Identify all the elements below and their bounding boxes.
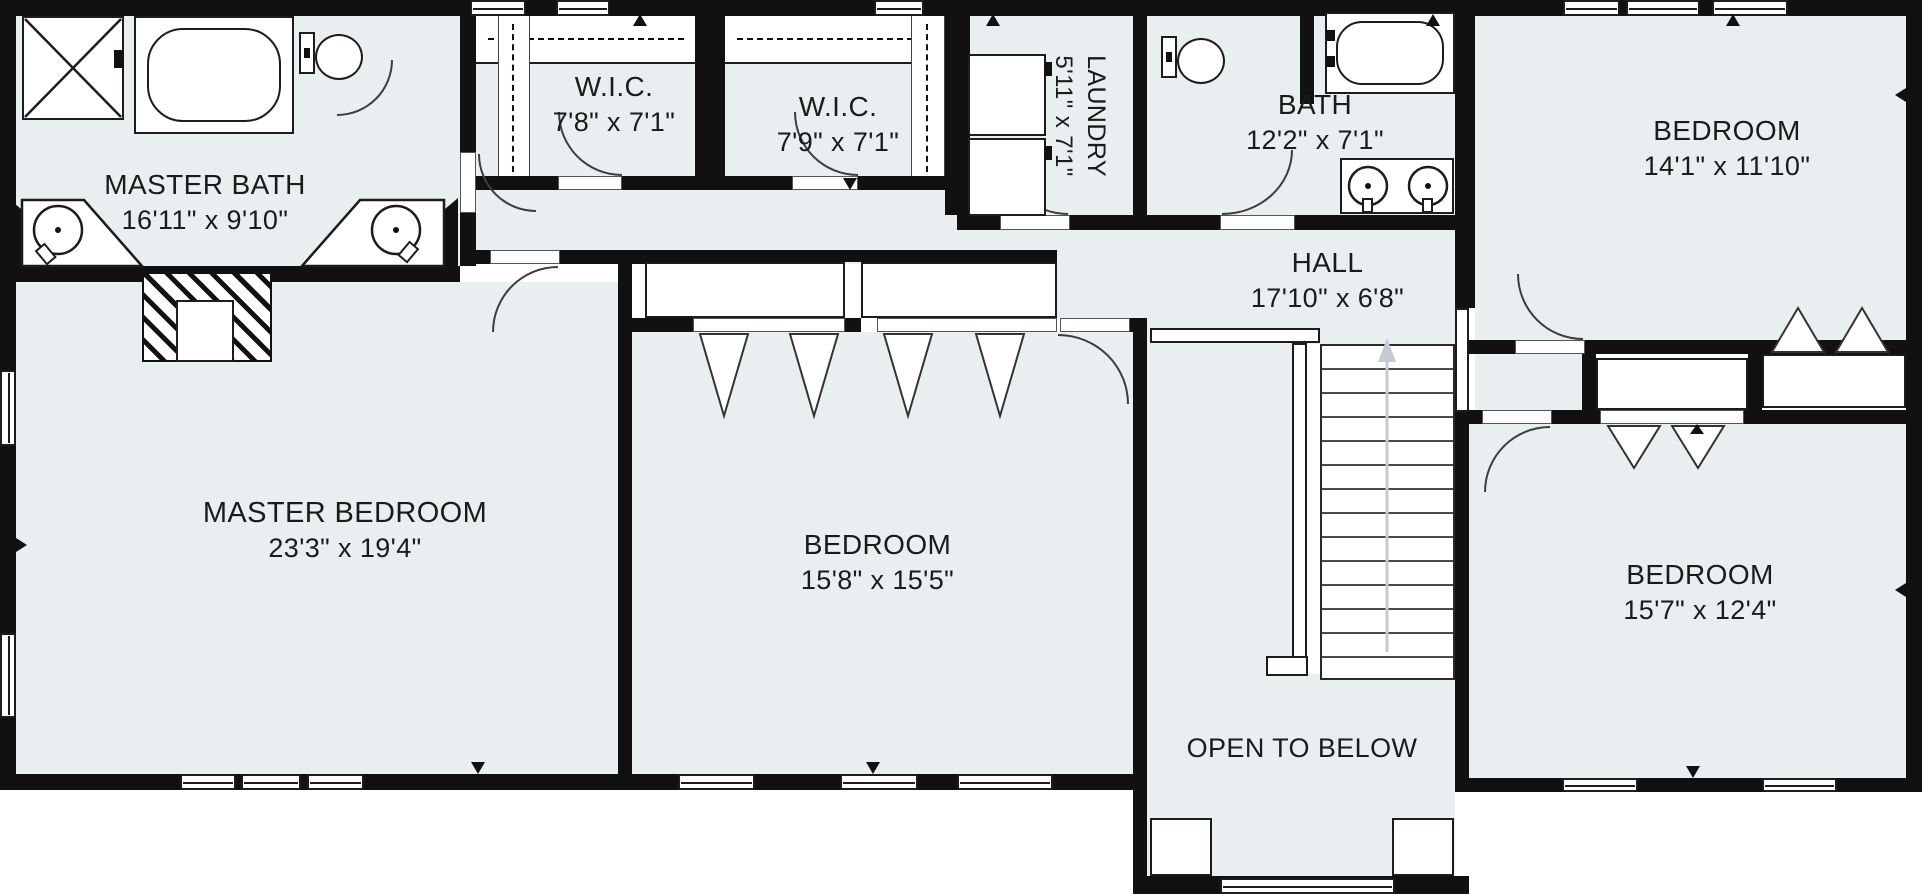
room-name: LAUNDRY bbox=[1082, 55, 1108, 177]
wall bbox=[1469, 340, 1515, 354]
window bbox=[840, 774, 918, 790]
fireplace-icon bbox=[176, 300, 234, 362]
room-name: BEDROOM bbox=[1653, 116, 1800, 145]
floor-hall-east bbox=[1057, 264, 1147, 318]
room-dims: 15'7" x 12'4" bbox=[1623, 596, 1776, 624]
wall bbox=[560, 250, 645, 264]
toilet-icon bbox=[315, 34, 363, 80]
stairs bbox=[1320, 344, 1455, 680]
toilet-icon bbox=[299, 32, 315, 74]
room-name: MASTER BEDROOM bbox=[203, 498, 487, 528]
vanity-icon bbox=[1340, 158, 1454, 214]
wall bbox=[632, 318, 693, 332]
wall bbox=[1147, 215, 1220, 230]
wall bbox=[1744, 410, 1906, 424]
door-opening bbox=[460, 152, 476, 213]
window bbox=[1626, 0, 1700, 16]
room-dims: 5'11" x 7'1" bbox=[1051, 55, 1076, 176]
window bbox=[1220, 878, 1395, 894]
closet-opening bbox=[877, 318, 1057, 332]
door-opening bbox=[1515, 340, 1585, 354]
floor-closet-landing bbox=[1475, 354, 1582, 410]
room-label-bedroom-top-right: BEDROOM 14'1" x 11'10" bbox=[1560, 110, 1894, 186]
door-opening bbox=[558, 176, 622, 190]
wall bbox=[1455, 412, 1469, 792]
room-dims: 17'10" x 6'8" bbox=[1251, 284, 1404, 312]
window bbox=[957, 774, 1053, 790]
room-label-hall: HALL 17'10" x 6'8" bbox=[1195, 242, 1460, 318]
bathtub-icon bbox=[1336, 21, 1444, 85]
shower-icon bbox=[22, 16, 124, 120]
window bbox=[180, 774, 236, 790]
window bbox=[0, 370, 16, 446]
closet bbox=[1596, 358, 1748, 410]
room-dims: 7'9" x 7'1" bbox=[777, 128, 899, 156]
wall bbox=[1552, 410, 1600, 424]
label-open-to-below: OPEN TO BELOW bbox=[1147, 730, 1457, 766]
stair-railing bbox=[1455, 308, 1469, 412]
room-label-laundry: LAUNDRY 5'11" x 7'1" bbox=[1038, 36, 1122, 196]
window bbox=[307, 774, 364, 790]
closet bbox=[645, 262, 845, 318]
wall bbox=[1582, 352, 1596, 412]
door-opening bbox=[490, 250, 560, 264]
washer-icon bbox=[968, 54, 1046, 136]
toilet-icon bbox=[1177, 38, 1225, 84]
window bbox=[874, 0, 924, 16]
wall bbox=[1469, 410, 1482, 424]
room-label-bedroom-bottom-right: BEDROOM 15'7" x 12'4" bbox=[1522, 552, 1878, 632]
window bbox=[1563, 0, 1620, 16]
room-dims: 7'8" x 7'1" bbox=[553, 108, 675, 136]
room-name: BATH bbox=[1278, 90, 1352, 119]
wall bbox=[1462, 778, 1914, 792]
door-opening bbox=[1220, 215, 1295, 230]
room-label-wic2: W.I.C. 7'9" x 7'1" bbox=[728, 88, 948, 160]
window bbox=[241, 774, 301, 790]
open-to-below-text: OPEN TO BELOW bbox=[1187, 734, 1418, 762]
wall-niche bbox=[1150, 818, 1212, 876]
wall bbox=[1906, 0, 1922, 792]
room-label-master-bath: MASTER BATH 16'11" x 9'10" bbox=[60, 164, 350, 240]
room-name: HALL bbox=[1292, 248, 1364, 277]
window bbox=[1712, 0, 1788, 16]
window bbox=[1762, 778, 1837, 792]
door-opening bbox=[1060, 318, 1130, 332]
stair-railing bbox=[1150, 328, 1320, 343]
floor-open-to-below bbox=[1147, 344, 1292, 674]
wall bbox=[460, 16, 476, 152]
wall bbox=[858, 176, 957, 190]
door-opening bbox=[1482, 410, 1552, 424]
closet bbox=[861, 262, 1057, 318]
closet-rod bbox=[737, 38, 933, 40]
wall bbox=[1748, 352, 1762, 412]
room-name: BEDROOM bbox=[1626, 560, 1773, 589]
wall-niche bbox=[1392, 818, 1454, 876]
wall bbox=[945, 16, 970, 215]
floor-plan: MASTER BATH 16'11" x 9'10" W.I.C. 7'8" x… bbox=[0, 0, 1922, 894]
wall bbox=[460, 250, 490, 264]
window bbox=[0, 633, 16, 718]
door-arc bbox=[492, 266, 558, 332]
dryer-icon bbox=[968, 138, 1046, 216]
stair-railing bbox=[1292, 343, 1307, 675]
room-dims: 14'1" x 11'10" bbox=[1644, 152, 1811, 180]
room-label-bath: BATH 12'2" x 7'1" bbox=[1190, 84, 1440, 160]
closet-opening bbox=[1600, 410, 1744, 424]
room-name: BEDROOM bbox=[804, 530, 951, 559]
wall bbox=[645, 250, 1057, 262]
window bbox=[556, 0, 610, 16]
closet-opening bbox=[693, 318, 845, 332]
room-label-bedroom-middle: BEDROOM 15'8" x 15'5" bbox=[700, 522, 1055, 602]
room-label-master-bedroom: MASTER BEDROOM 23'3" x 19'4" bbox=[120, 490, 570, 570]
bathtub-icon bbox=[147, 28, 281, 122]
room-dims: 16'11" x 9'10" bbox=[122, 206, 289, 234]
wall bbox=[845, 318, 861, 332]
door-opening bbox=[792, 176, 858, 190]
wall bbox=[1070, 215, 1147, 230]
window bbox=[470, 0, 526, 16]
room-name: MASTER BATH bbox=[104, 170, 305, 199]
stair-railing bbox=[1266, 656, 1308, 676]
door-opening bbox=[1000, 215, 1070, 230]
wall bbox=[1130, 318, 1147, 332]
room-dims: 23'3" x 19'4" bbox=[268, 534, 421, 562]
toilet-icon bbox=[1161, 36, 1177, 78]
window bbox=[1562, 778, 1638, 792]
room-name: W.I.C. bbox=[799, 92, 878, 121]
wall bbox=[1133, 318, 1147, 878]
wall bbox=[957, 215, 1000, 230]
closet bbox=[1762, 354, 1906, 408]
wall bbox=[1295, 215, 1455, 230]
wall bbox=[1133, 16, 1147, 215]
room-dims: 15'8" x 15'5" bbox=[801, 566, 954, 594]
wall bbox=[618, 264, 632, 774]
room-dims: 12'2" x 7'1" bbox=[1246, 126, 1384, 154]
room-label-wic1: W.I.C. 7'8" x 7'1" bbox=[504, 68, 724, 140]
room-name: W.I.C. bbox=[575, 72, 654, 101]
window bbox=[678, 774, 755, 790]
